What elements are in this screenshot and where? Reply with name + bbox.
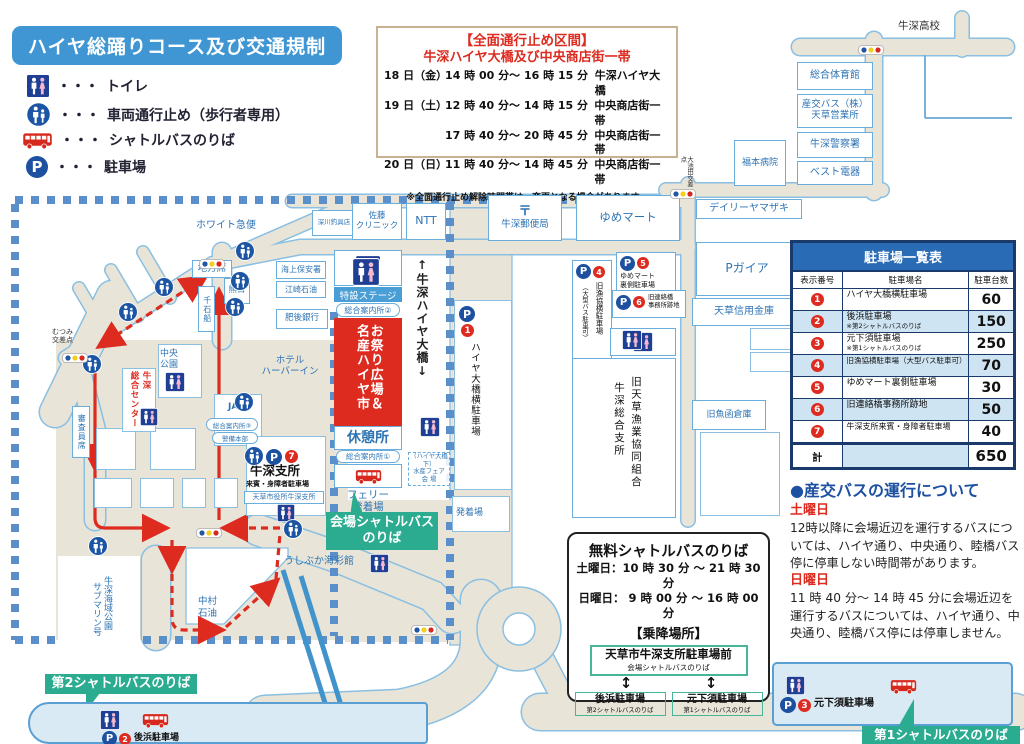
label-p4-name: 旧漁協横駐車場 — [592, 282, 603, 368]
building-fukumoto-hospital: 福本病院 — [734, 140, 786, 186]
sunday-text: 11 時 40 分～ 14 時 45 分に会場近辺を運行するバスについては、ハイ… — [790, 590, 1022, 643]
parking-icon: P — [620, 256, 635, 271]
label-sogo-center-2: 総合センター — [126, 371, 138, 431]
label-pier: 発着場 — [456, 508, 483, 518]
label-haiya-bridge: ↑牛深ハイヤ大橋↓ — [411, 258, 428, 436]
traffic-signal-icon — [196, 523, 222, 533]
city-block — [94, 478, 132, 508]
parking-icon: P — [26, 156, 48, 178]
callout-pointer — [898, 699, 914, 727]
parking-no-7: 7 — [285, 450, 298, 463]
table-row: 5 ゆめマート裏側駐車場 30 — [793, 377, 1013, 399]
bus-info-heading: ●産交バスの運行について — [790, 477, 1022, 501]
parking-no-6: 6 — [633, 296, 645, 308]
closure-title: 【全面通行止め区間】 — [384, 33, 670, 50]
shuttle-sat: 土曜日：10 時 30 分 ～ 21 時 30 分 — [573, 561, 764, 591]
label-p1-name: ハイヤ大橋横駐車場 — [465, 342, 479, 474]
building-fukagawa-tackle: 深川釣具店 — [312, 210, 356, 236]
building-daily-yamazaki: デイリーヤマザキ — [696, 199, 802, 219]
label-kaisaikan: うしぶか海彩館 — [284, 556, 354, 568]
info-center-3: 総合案内所③ — [206, 418, 258, 431]
table-row: 2 後浜駐車場※第2シャトルバスのりば 150 — [793, 311, 1013, 333]
city-block — [700, 432, 780, 516]
road-closure-notice: 【全面通行止め区間】 牛深ハイヤ大橋及び中央商店街一帯 18 日（金）14 時 … — [376, 26, 678, 158]
festival-traffic-map: { "colors":{"accent_blue":"#3f96d2","nav… — [0, 0, 1024, 744]
city-block — [214, 478, 238, 508]
legend-label: トイレ — [106, 76, 148, 96]
venue-shuttle-stop-callout: 会場シャトルバスのりば — [326, 512, 438, 550]
city-block — [140, 478, 174, 508]
closure-row: 20 日（日）11 時 40 分～ 14 時 45 分中央商店街一帯 — [384, 158, 670, 188]
toilet-icon — [352, 258, 380, 286]
label-chuo-park: 中央公園 — [160, 349, 178, 371]
city-block — [750, 328, 794, 350]
toilet-icon — [165, 372, 185, 392]
parking-table: 駐車場一覧表 表示番号 駐車場名 駐車台数 1 ハイヤ大橋横駐車場 60 2 後… — [790, 240, 1016, 470]
pedestrian-only-icon — [230, 271, 250, 291]
shuttle-title: 無料シャトルバスのりば — [573, 540, 764, 561]
building-post-office: 〒 牛深郵便局 — [488, 195, 562, 241]
fisheries-fair-venue: （ハイヤ大橋下）水産フェア会 場 — [408, 452, 450, 486]
pedestrian-only-icon — [88, 536, 108, 556]
toilet-icon — [100, 710, 120, 730]
closure-subtitle: 牛深ハイヤ大橋及び中央商店街一帯 — [384, 50, 670, 66]
building-amakusa-shinkin: 天草信用金庫 — [692, 298, 796, 326]
toilet-icon — [786, 676, 805, 695]
parking-no-1: 1 — [461, 324, 474, 337]
label-judges-seats: 審査員席 — [72, 406, 90, 458]
legend-item-toilet: ・・・ トイレ — [26, 74, 148, 98]
label-sengokubune: 千石船 — [198, 286, 215, 332]
parking-no-2: 2 — [119, 733, 131, 744]
label-rest-area: 休憩所 — [334, 426, 402, 450]
table-row: 4 旧漁協横駐車場（大型バス駐車可） 70 — [793, 355, 1013, 377]
building-gyobako-warehouse: 旧魚函倉庫 — [692, 400, 766, 430]
pedestrian-only-icon — [225, 297, 245, 317]
label-white-kyubin: ホワイト急便 — [196, 220, 256, 232]
toilet-icon — [622, 330, 642, 350]
boarding-points-heading: 【乗降場所】 — [573, 623, 764, 642]
pedestrian-only-icon — [118, 302, 138, 322]
pedestrian-only-icon — [283, 519, 303, 539]
label-nakamura-oil: 中村石油 — [198, 596, 217, 620]
building-sato-clinic: 佐藤クリニック — [352, 203, 402, 240]
label-raihin-parking: 来賓・身障者駐車場 — [246, 480, 309, 488]
label-p6-name: 旧連絡橋事務所跡地 — [648, 294, 679, 310]
shuttle-bus-icon — [890, 678, 917, 695]
legend-item-shuttle: ・・・ シャトルバスのりば — [22, 130, 235, 150]
closure-row: 17 時 40 分～ 20 時 45 分中央商店街一帯 — [384, 129, 670, 159]
bus-operation-info: ●産交バスの運行について 土曜日 12時以降に会場近辺を運行するバスについては、… — [790, 477, 1022, 643]
info-center-2: 総合案内所② — [336, 303, 400, 317]
sunday-label: 日曜日 — [790, 573, 1022, 590]
pedestrian-only-icon — [235, 241, 255, 261]
legend-dots: ・・・ — [57, 76, 99, 96]
free-shuttle-box: 無料シャトルバスのりば 土曜日：10 時 30 分 ～ 21 時 30 分 日曜… — [567, 532, 770, 702]
shuttle-sun: 日曜日： 9 時 00 分 ～ 16 時 00 分 — [573, 591, 764, 621]
post-mark-icon: 〒 — [518, 205, 531, 220]
updown-arrow-icon: ↕ — [705, 676, 718, 691]
traffic-signal-icon — [411, 620, 437, 630]
building-gymnasium: 総合体育館 — [797, 62, 873, 90]
shuttle-bus-icon — [355, 468, 382, 485]
pedestrian-only-icon — [154, 277, 174, 297]
label-p4-note: （大型バス駐車可） — [577, 284, 587, 366]
label-gohama-parking: 後浜駐車場 — [134, 733, 179, 743]
security-hq: 警備本部 — [212, 432, 258, 444]
label-submarine: サブマリン号 — [89, 582, 100, 656]
table-row: 1 ハイヤ大橋横駐車場 60 — [793, 289, 1013, 311]
map-title: ハイヤ総踊りコース及び交通規制 — [12, 26, 342, 65]
legend-label: 車両通行止め（歩行者専用） — [107, 105, 289, 125]
pedestrian-only-icon — [244, 446, 264, 466]
toilet-icon — [370, 554, 389, 573]
legend-dots: ・・・ — [60, 130, 102, 150]
pedestrian-only-icon — [26, 102, 51, 127]
label-mutsumi-crossing: むつみ交差点 — [52, 328, 73, 345]
toilet-icon — [140, 408, 158, 426]
label-p5-name: ゆめマート裏側駐車場 — [620, 272, 655, 290]
city-block — [750, 352, 794, 372]
label-ferry-terminal: フェリー発着場 — [334, 489, 402, 513]
table-row: 6 旧連絡橋事務所跡地 50 — [793, 399, 1013, 421]
building-police: 牛深警察署 — [797, 132, 873, 158]
updown-arrow-icon: ↕ — [620, 676, 633, 691]
table-total-row: 計 650 — [793, 443, 1013, 467]
label-special-stage: 特設ステージ — [334, 287, 402, 302]
label-marine-park: 牛深海域公園 — [100, 576, 111, 656]
parking-no-3: 3 — [798, 699, 811, 712]
parking-icon: P — [780, 697, 796, 713]
city-block — [150, 428, 196, 470]
building-ntt: NTT — [406, 203, 446, 240]
parking-icon: P — [616, 295, 631, 310]
parking-icon: P — [102, 731, 117, 744]
city-block — [182, 478, 206, 508]
pedestrian-only-icon — [234, 392, 254, 412]
legend-label: 駐車場 — [104, 157, 146, 177]
festival-plaza-box: お祭り広場＆名産ハイヤ市 — [334, 318, 402, 426]
label-sogo-center-1: 牛深 — [138, 371, 150, 395]
parking-no-5: 5 — [637, 257, 649, 269]
transfer-arrows: ↕ ↕ — [584, 676, 754, 691]
info-center-1: 総合案内所① — [336, 450, 400, 463]
saturday-label: 土曜日 — [790, 503, 1022, 520]
closure-row: 18 日（金）14 時 00 分～ 16 時 15 分牛深ハイヤ大橋 — [384, 69, 670, 99]
building-p-gaia: Pガイア — [696, 242, 798, 296]
building-coast-guard: 海上保安署 — [276, 261, 326, 279]
building-hotel-harbour-inn: ホテルハーバーイン — [250, 356, 330, 378]
toilet-box — [610, 328, 676, 356]
closure-row: 19 日（土）12 時 40 分～ 14 時 15 分中央商店街一帯 — [384, 99, 670, 129]
main-stop: 天草市牛深支所駐車場前 会場シャトルバスのりば — [590, 645, 748, 676]
shuttle-bus-icon — [22, 131, 53, 150]
traffic-signal-icon — [858, 40, 884, 50]
building-yume-mart: ゆめマート — [576, 195, 680, 241]
parking-table-header: 表示番号 駐車場名 駐車台数 — [793, 272, 1013, 289]
building-sanko-bus: 産交バス（株）天草営業所 — [797, 94, 873, 128]
legend-item-parking: P ・・・ 駐車場 — [26, 156, 146, 178]
label-city-office: 天草市役所牛深支所 — [244, 491, 324, 504]
parking-icon: P — [576, 264, 591, 279]
toilet-icon — [420, 417, 440, 437]
toilet-icon — [26, 74, 50, 98]
city-block — [96, 428, 136, 470]
parking-icon: P — [459, 306, 475, 322]
label-motoshimosu-parking: 元下須駐車場 — [814, 698, 874, 710]
shuttle-bus-icon — [142, 712, 169, 729]
bus-stop-box — [334, 464, 402, 488]
parking-table-title: 駐車場一覧表 — [793, 243, 1013, 272]
legend-item-pedestrian: ・・・ 車両通行止め（歩行者専用） — [26, 102, 289, 127]
table-row: 3 元下須駐車場※第1シャトルバスのりば 250 — [793, 333, 1013, 355]
table-row: 7 牛深支所来賓・身障者駐車場 40 — [793, 421, 1013, 443]
stop-gohama: 後浜駐車場 第2シャトルバスのりば — [575, 692, 666, 717]
legend-dots: ・・・ — [58, 105, 100, 125]
label-ushibuka-shisho: 牛深支所 — [250, 464, 300, 478]
building-ezaki-oil: 江崎石油 — [276, 281, 326, 298]
legend-dots: ・・・ — [55, 157, 97, 177]
building-higo-bank: 肥後銀行 — [276, 309, 328, 329]
traffic-signal-icon — [670, 184, 696, 194]
parking-no-4: 4 — [593, 266, 605, 278]
gohama-parking-inset — [28, 702, 428, 744]
label-sogo-shisho: 牛深総合支所 — [610, 382, 624, 492]
shuttle-stop-1-callout: 第1シャトルバスのりば — [862, 726, 1020, 744]
saturday-text: 12時以降に会場近辺を運行するバスについては、ハイヤ通り、中央通り、睦橋バス停に… — [790, 520, 1022, 573]
traffic-signal-icon — [199, 254, 225, 264]
stop-motoshimosu: 元下須駐車場 第1シャトルバスのりば — [672, 692, 763, 717]
traffic-signal-icon — [62, 348, 88, 358]
building-best-denki: ベスト電器 — [797, 161, 873, 185]
legend-label: シャトルバスのりば — [109, 130, 235, 150]
shuttle-stop-2-callout: 第2シャトルバスのりば — [45, 674, 197, 694]
label-fishery-coop: 旧天草漁業協同組合 — [626, 376, 641, 534]
label-ushibuka-highschool: 牛深高校 — [898, 20, 940, 32]
